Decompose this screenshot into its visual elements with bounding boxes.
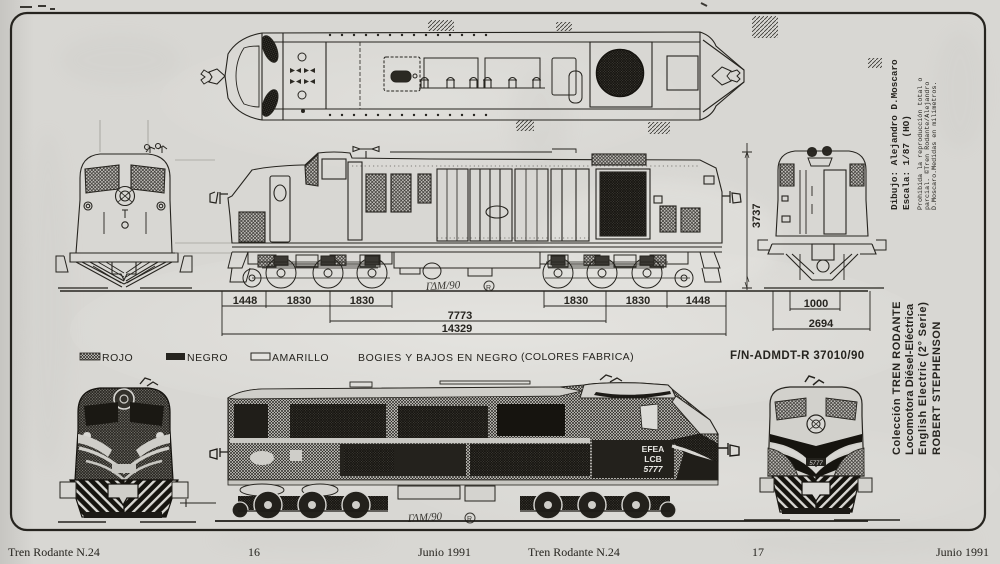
svg-text:NEGRO: NEGRO	[187, 352, 228, 364]
svg-text:7773: 7773	[448, 310, 472, 322]
svg-text:5777: 5777	[809, 461, 823, 467]
svg-text:BOGIES Y BAJOS EN NEGRO: BOGIES Y BAJOS EN NEGRO	[358, 352, 518, 364]
svg-text:1830: 1830	[626, 295, 650, 307]
svg-text:1448: 1448	[233, 295, 257, 307]
svg-text:EFEA: EFEA	[642, 444, 665, 454]
svg-text:1000: 1000	[804, 298, 828, 310]
svg-text:ΓΔM/90: ΓΔM/90	[406, 511, 443, 525]
svg-text:5777: 5777	[644, 464, 664, 474]
svg-text:Colección TREN RODANTE: Colección TREN RODANTE	[891, 301, 903, 455]
svg-text:AMARILLO: AMARILLO	[272, 352, 329, 364]
svg-text:14329: 14329	[442, 323, 473, 335]
svg-text:Tren Rodante N.24: Tren Rodante N.24	[528, 545, 620, 559]
svg-text:17: 17	[752, 545, 764, 559]
svg-text:English Electric (2° Serie): English Electric (2° Serie)	[917, 301, 929, 455]
svg-text:Escala: 1/87 (HO): Escala: 1/87 (HO)	[901, 115, 912, 210]
svg-text:LCB: LCB	[644, 454, 661, 464]
svg-text:F/N-ADMDT-R 37010/90: F/N-ADMDT-R 37010/90	[730, 350, 865, 362]
svg-text:Locomotora Diésel-Eléctrica: Locomotora Diésel-Eléctrica	[904, 303, 916, 455]
svg-text:Junio 1991: Junio 1991	[418, 545, 471, 559]
svg-text:(COLORES FABRICA): (COLORES FABRICA)	[521, 351, 634, 363]
svg-text:1448: 1448	[686, 295, 710, 307]
svg-text:ROBERT STEPHENSON: ROBERT STEPHENSON	[931, 321, 943, 455]
svg-text:Junio 1991: Junio 1991	[936, 545, 989, 559]
svg-text:Tren Rodante N.24: Tren Rodante N.24	[8, 545, 100, 559]
svg-text:R: R	[467, 516, 472, 523]
svg-text:3737: 3737	[751, 204, 763, 228]
svg-text:1830: 1830	[350, 295, 374, 307]
svg-text:16: 16	[248, 545, 260, 559]
svg-text:ROJO: ROJO	[102, 352, 133, 364]
svg-text:D.Moscaro.Medidas en milímetro: D.Moscaro.Medidas en milímetros.	[931, 82, 939, 210]
svg-text:1830: 1830	[564, 295, 588, 307]
svg-text:Dibujo: Alejandro D.Moscaro: Dibujo: Alejandro D.Moscaro	[889, 59, 900, 210]
svg-text:2694: 2694	[809, 318, 834, 330]
svg-text:1830: 1830	[287, 295, 311, 307]
